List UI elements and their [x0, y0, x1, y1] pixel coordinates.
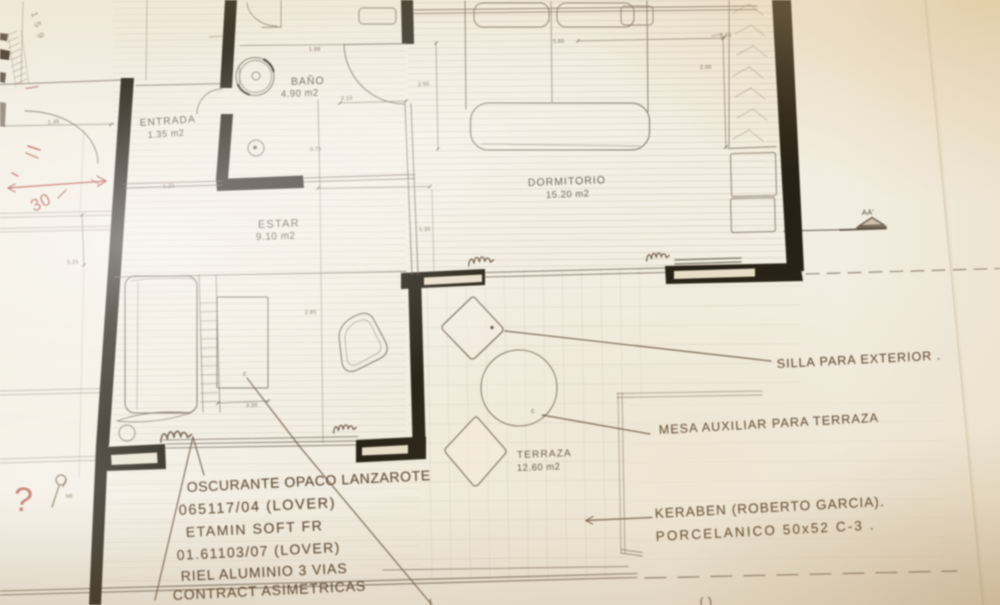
svg-text:0.25: 0.25	[67, 260, 79, 266]
svg-text:ETAMIN SOFT FR: ETAMIN SOFT FR	[185, 517, 323, 540]
svg-text:9: 9	[35, 31, 46, 40]
svg-text:01.61103/07 (LOVER): 01.61103/07 (LOVER)	[176, 539, 341, 563]
svg-text:SILLA PARA EXTERIOR .: SILLA PARA EXTERIOR .	[776, 348, 941, 371]
svg-text:NE: NE	[66, 493, 74, 500]
svg-text:15.20 m2: 15.20 m2	[546, 188, 590, 201]
svg-text:065117/04 (LOVER): 065117/04 (LOVER)	[178, 495, 336, 519]
svg-text:KERABEN (ROBERTO GARCIA).: KERABEN (ROBERTO GARCIA).	[654, 494, 885, 521]
svg-text:1.30: 1.30	[419, 227, 431, 233]
svg-text:2.10: 2.10	[341, 96, 353, 102]
svg-text:( ): ( )	[699, 594, 713, 605]
svg-text:5.85: 5.85	[553, 39, 565, 45]
svg-text:4.90 m2: 4.90 m2	[281, 88, 319, 100]
svg-text:2.00: 2.00	[700, 65, 712, 71]
svg-text:5: 5	[32, 20, 43, 29]
svg-text:ESTAR: ESTAR	[258, 218, 300, 231]
svg-text:ENTRADA: ENTRADA	[139, 114, 196, 129]
svg-text:TERRAZA: TERRAZA	[517, 448, 572, 461]
svg-text:1.35 m2: 1.35 m2	[147, 127, 184, 140]
svg-text:1.20: 1.20	[163, 183, 175, 190]
svg-text:30: 30	[27, 189, 54, 215]
svg-text:0.75: 0.75	[310, 147, 322, 153]
svg-text:2.55: 2.55	[418, 82, 430, 88]
svg-text:/: /	[427, 596, 434, 605]
svg-text:9.10 m2: 9.10 m2	[256, 231, 296, 243]
svg-text:OSCURANTE OPACO LANZAROTE: OSCURANTE OPACO LANZAROTE	[186, 467, 431, 495]
svg-text:MESA AUXILIAR PARA TERRAZA: MESA AUXILIAR PARA TERRAZA	[658, 411, 879, 437]
svg-text:BAÑO: BAÑO	[291, 74, 325, 88]
svg-text:1: 1	[29, 10, 40, 19]
svg-text:DORMITORIO: DORMITORIO	[528, 174, 606, 189]
svg-text:1.35: 1.35	[48, 119, 60, 126]
svg-text:2.85: 2.85	[305, 310, 317, 316]
svg-text:AA': AA'	[862, 208, 875, 217]
svg-text:3.20: 3.20	[246, 403, 258, 409]
svg-text:12.60 m2: 12.60 m2	[517, 461, 561, 474]
svg-text:c: c	[243, 371, 247, 378]
svg-text:1.98: 1.98	[309, 47, 321, 53]
svg-text:0.60: 0.60	[720, 33, 732, 39]
svg-text:c: c	[531, 408, 535, 415]
svg-text:PORCELANICO 50x52 C-3 .: PORCELANICO 50x52 C-3 .	[655, 517, 876, 543]
svg-text:?: ?	[11, 480, 34, 520]
